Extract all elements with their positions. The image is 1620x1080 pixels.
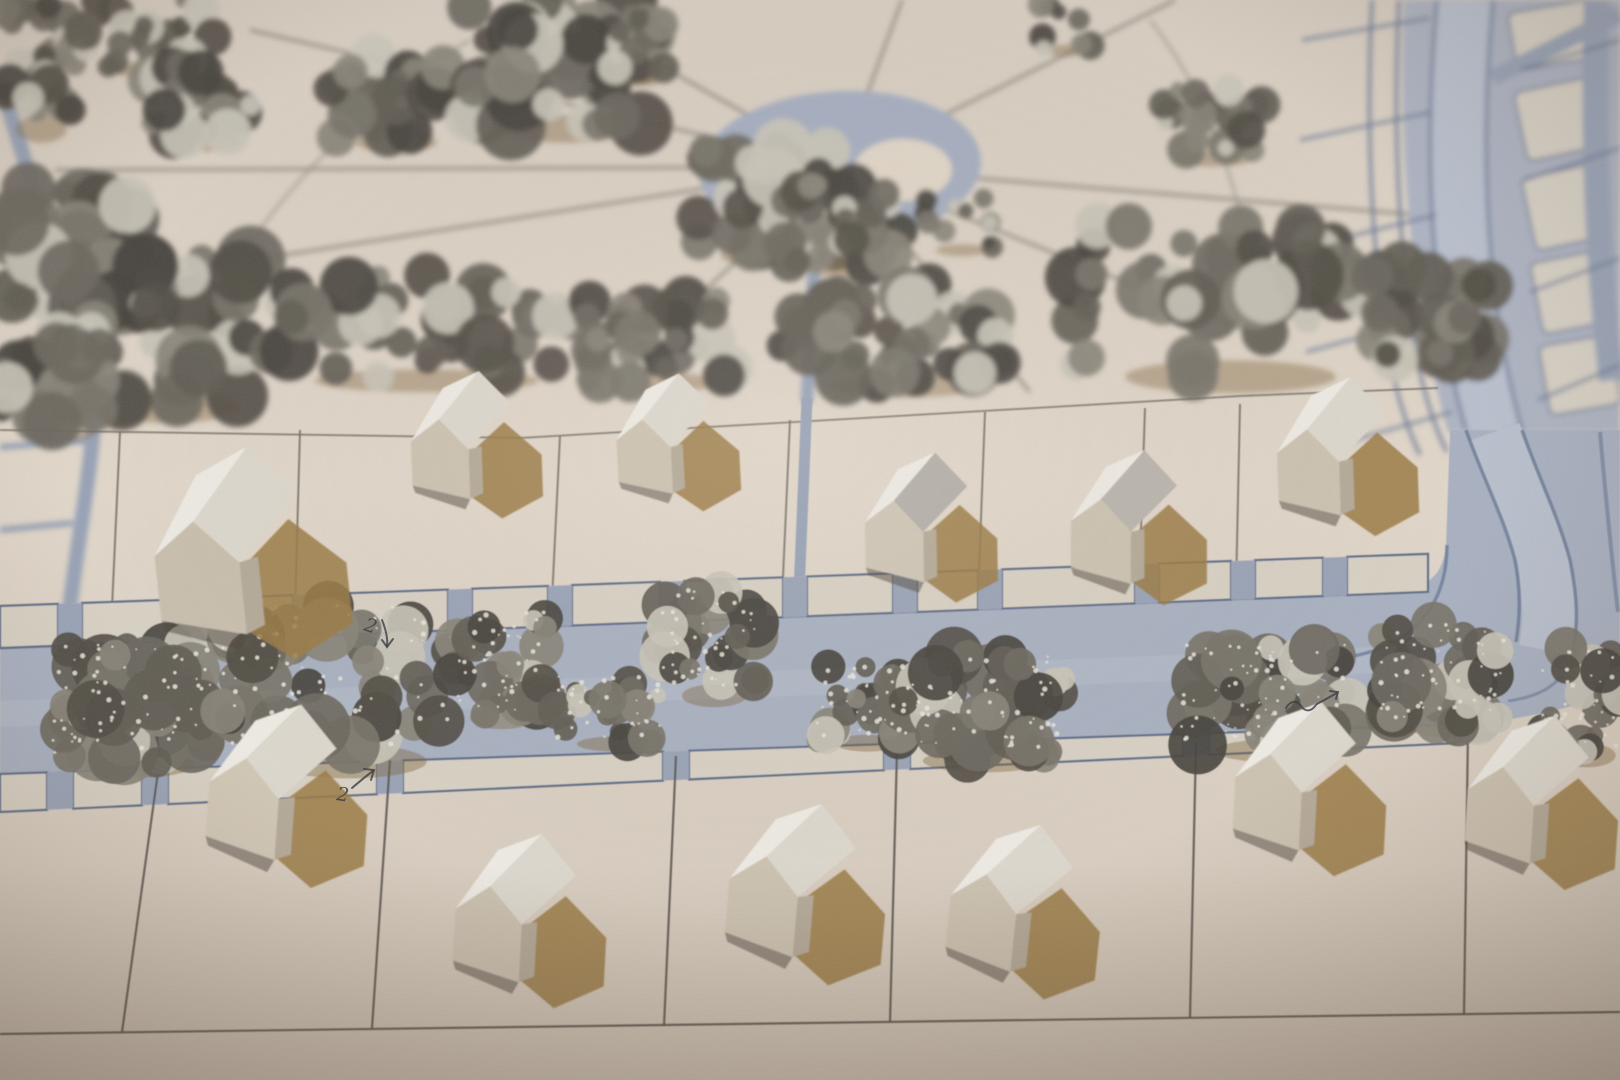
photo-of-architecture-model: 22 [0,0,1620,1080]
film-grain-overlay [0,0,1620,1080]
model-scene-canvas: 22 [0,0,1620,1080]
photo-vignette-and-grain [0,0,1620,1080]
